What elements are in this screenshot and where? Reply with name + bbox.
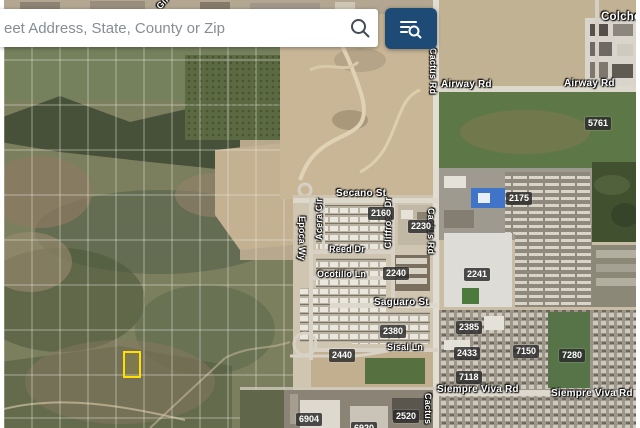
search-bar bbox=[0, 9, 437, 49]
rural-area bbox=[0, 14, 302, 428]
parcel-number-chip: 2385 bbox=[456, 321, 482, 334]
parcel-number-chip: 2230 bbox=[408, 220, 434, 233]
parcel-number-chip: 2433 bbox=[454, 347, 480, 360]
map-app-screen: Colchester Airway Rd Airway Rd Cactus Rd… bbox=[0, 0, 640, 428]
parcel-number-chip: 7280 bbox=[559, 349, 585, 362]
parcel-number-chip: 2240 bbox=[383, 267, 409, 280]
selected-parcel-highlight[interactable] bbox=[123, 351, 141, 378]
search-box bbox=[0, 9, 378, 47]
parcel-number-chip: 2440 bbox=[329, 349, 355, 362]
parcel-number-chip: 6920 bbox=[351, 422, 377, 428]
parcel-number-chip: 7150 bbox=[513, 345, 539, 358]
green-field bbox=[438, 92, 640, 168]
search-input[interactable] bbox=[0, 20, 342, 37]
parcel-number-chip: 5761 bbox=[585, 117, 611, 130]
page-margin-left bbox=[0, 0, 4, 428]
filter-search-button[interactable] bbox=[385, 8, 437, 49]
filter-search-icon bbox=[399, 18, 423, 40]
parcel-number-chip: 7118 bbox=[456, 371, 482, 384]
search-icon[interactable] bbox=[342, 17, 378, 39]
parcel-number-chip: 2241 bbox=[464, 268, 490, 281]
magnifier-icon bbox=[349, 17, 371, 39]
satellite-map-canvas[interactable] bbox=[0, 0, 640, 428]
parcel-number-chip: 2380 bbox=[380, 325, 406, 338]
northeast-area bbox=[438, 0, 640, 90]
parcel-number-chip: 2520 bbox=[393, 410, 419, 423]
page-margin-right bbox=[636, 0, 640, 428]
parcel-number-chip: 2175 bbox=[506, 192, 532, 205]
parcel-number-chip: 2160 bbox=[368, 207, 394, 220]
parcel-number-chip: 6904 bbox=[296, 413, 322, 426]
